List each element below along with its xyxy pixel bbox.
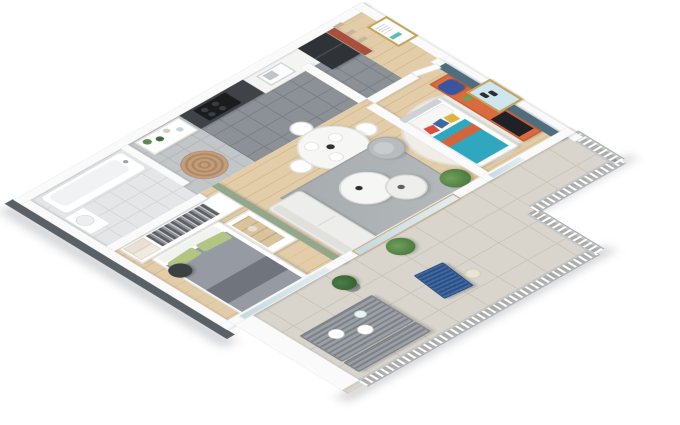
floorplan-scene	[0, 0, 680, 425]
isometric-plane	[14, 3, 680, 401]
